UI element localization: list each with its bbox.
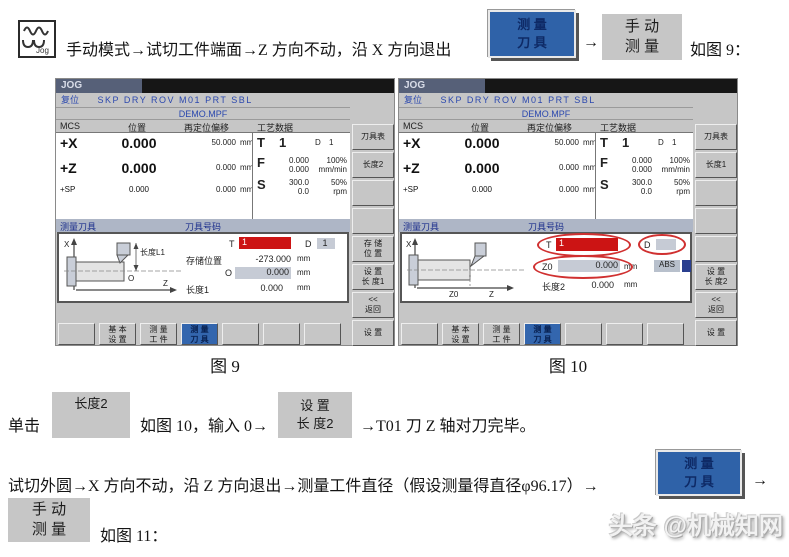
axis-sp-name: +SP	[60, 185, 75, 194]
bottom-softkeys: 基 本 设 置 测 量 工 件 测 量 刀 具	[58, 323, 350, 345]
softkey-basic-settings[interactable]: 基 本 设 置	[99, 323, 136, 345]
f-unit: mm/min	[309, 165, 347, 174]
offset-label: O	[225, 268, 232, 278]
f-unit: mm/min	[652, 165, 690, 174]
axis-z-repos: 0.000	[176, 163, 236, 172]
softkey-set-length2[interactable]: 设 置 长 度2	[695, 264, 737, 290]
fig10-caption: 图 10	[498, 352, 638, 377]
position-table-header: MCS 位置 再定位偏移 工艺数据	[56, 120, 350, 133]
f-override: 100%	[313, 156, 347, 165]
axis-x-repos: 50.000	[519, 138, 579, 147]
diagram-z-label: Z	[163, 279, 168, 288]
manual-measure-button-2[interactable]: 手 动 测 量	[8, 498, 90, 542]
s-set: 0.0	[614, 187, 652, 196]
measure-tool-button[interactable]: 测 量 刀 具	[488, 10, 576, 58]
softkey-empty[interactable]	[647, 323, 684, 345]
set-length2-button[interactable]: 设 置 长 度2	[278, 392, 352, 438]
axis-x-position: 0.000	[445, 135, 519, 151]
s-label: S	[257, 177, 266, 192]
axis-sp-position: 0.000	[102, 185, 176, 194]
d-label: D	[315, 138, 321, 147]
axis-z-name: +Z	[403, 160, 420, 176]
axis-sp-repos: 0.000	[176, 185, 236, 194]
s-actual: 300.0	[614, 178, 652, 187]
s-override: 50%	[656, 178, 690, 187]
t-label: T	[600, 135, 608, 150]
panel-t-field[interactable]: 1	[239, 237, 291, 249]
line4-text: 如图 11：	[100, 522, 167, 546]
tech-data-area: T 1 D 1 F 0.000 0.000 100% mm/min S 300.…	[595, 133, 693, 219]
annotation-circle-z0	[533, 255, 633, 279]
softkey-settings[interactable]: 设 置	[352, 320, 394, 346]
status-reset-label: 复位	[404, 95, 422, 105]
d-label: D	[658, 138, 664, 147]
softkey-measure-tool[interactable]: 测 量 刀 具	[181, 323, 218, 345]
tech-data-area: T 1 D 1 F 0.000 0.000 100% mm/min S 300.…	[252, 133, 350, 219]
t-value: 1	[622, 135, 629, 150]
s-override: 50%	[313, 178, 347, 187]
softkey-empty[interactable]	[695, 180, 737, 206]
offset-unit: mm	[297, 268, 310, 277]
softkey-tool-table[interactable]: 刀具表	[352, 124, 394, 150]
measure-tool-button-2[interactable]: 测 量 刀 具	[656, 450, 742, 496]
status-flags: SKP DRY ROV M01 PRT SBL	[98, 95, 253, 105]
axis-z-name: +Z	[60, 160, 77, 176]
screen-titlebar: JOG	[399, 79, 737, 93]
f-actual: 0.000	[271, 156, 309, 165]
position-table-header: MCS 位置 再定位偏移 工艺数据	[399, 120, 693, 133]
tool-diagram: X Z0 Z	[405, 236, 530, 298]
fig9-caption: 图 9	[155, 352, 295, 377]
arrow-2: →	[752, 472, 768, 490]
softkey-store-position[interactable]: 存 储 位 置	[352, 236, 394, 262]
softkey-measure-workpiece[interactable]: 测 量 工 件	[140, 323, 177, 345]
axis-sp-name: +SP	[403, 185, 418, 194]
status-reset-label: 复位	[61, 95, 79, 105]
tool-diagram: X 长度L1 O Z	[62, 236, 187, 298]
axis-sp-position: 0.000	[445, 185, 519, 194]
line2-text3: →T01 刀 Z 轴对刀完毕。	[360, 412, 536, 436]
axis-z-position: 0.000	[102, 160, 176, 176]
length2-value: 0.000	[572, 280, 614, 290]
status-bar: 复位 SKP DRY ROV M01 PRT SBL	[56, 93, 350, 108]
softkey-empty[interactable]	[352, 180, 394, 206]
measure-tool-panel: X 长度L1 O Z T 1 D 1 存储位置 -273.000 mm O 0.…	[57, 232, 349, 303]
line1-text: 手动模式→试切工件端面→Z 方向不动，沿 X 方向退出	[66, 36, 451, 60]
s-actual: 300.0	[271, 178, 309, 187]
axis-row-x: +X 0.000 50.000 mm	[399, 135, 595, 157]
panel-d-field[interactable]: 1	[317, 238, 335, 249]
axis-z-position: 0.000	[445, 160, 519, 176]
axis-x-repos: 50.000	[176, 138, 236, 147]
measure-panel-header: 测量刀具 刀具号码	[399, 219, 693, 232]
axis-row-z: +Z 0.000 0.000 mm	[399, 160, 595, 182]
line2-text2: 如图 10，输入 0→	[140, 412, 268, 436]
line3-text: 试切外圆→X 方向不动，沿 Z 方向退出→测量工件直径（假设测量得直径φ96.1…	[8, 472, 599, 496]
diagram-z-label: Z	[489, 290, 494, 298]
jog-mode-tab: JOG	[56, 79, 142, 93]
f-override: 100%	[656, 156, 690, 165]
jog-key-icon: Jog	[18, 20, 56, 58]
softkey-empty[interactable]	[304, 323, 341, 345]
axis-z-repos: 0.000	[519, 163, 579, 172]
cnc-screen-fig9: JOG 复位 SKP DRY ROV M01 PRT SBL DEMO.MPF …	[55, 78, 395, 346]
length2-button[interactable]: 长度2	[52, 392, 130, 438]
length2-label: 长度2	[542, 280, 565, 293]
col-mcs: MCS	[60, 121, 80, 131]
diagram-x-label: X	[406, 240, 412, 249]
abs-toggle-label[interactable]: ABS	[654, 260, 680, 272]
bottom-softkeys: 基 本 设 置 测 量 工 件 测 量 刀 具	[401, 323, 693, 345]
watermark: 头条 @机械知网	[609, 506, 783, 541]
t-label: T	[257, 135, 265, 150]
softkey-back[interactable]: << 返回	[352, 292, 394, 318]
position-area: +X 0.000 50.000 mm +Z 0.000 0.000 mm +SP…	[399, 133, 693, 219]
right-softkeys: 刀具表 长度1 设 置 长 度2 << 返回 设 置	[695, 124, 737, 348]
softkey-length2[interactable]: 长度2	[352, 152, 394, 178]
s-unit: rpm	[313, 187, 347, 196]
d-value: 1	[329, 138, 333, 147]
f-set: 0.000	[614, 165, 652, 174]
program-name: DEMO.MPF	[399, 108, 693, 120]
panel-t-label: T	[229, 239, 235, 249]
status-bar: 复位 SKP DRY ROV M01 PRT SBL	[399, 93, 693, 108]
axis-row-sp: +SP 0.000 0.000 mm	[56, 182, 252, 204]
cnc-screen-fig10: JOG 复位 SKP DRY ROV M01 PRT SBL DEMO.MPF …	[398, 78, 738, 346]
status-flags: SKP DRY ROV M01 PRT SBL	[441, 95, 596, 105]
measure-panel-header: 测量刀具 刀具号码	[56, 219, 350, 232]
axis-sp-repos: 0.000	[519, 185, 579, 194]
diagram-origin-label: O	[128, 274, 134, 283]
screen-titlebar: JOG	[56, 79, 394, 93]
measure-tool-panel: X Z0 Z T 1 D Z0 0.000 mm ABS 长度2 0.000 m…	[400, 232, 692, 303]
storage-position-unit: mm	[297, 254, 310, 263]
softkey-empty[interactable]	[565, 323, 602, 345]
softkey-empty[interactable]	[695, 236, 737, 262]
softkey-empty[interactable]	[58, 323, 95, 345]
arrow-1: →	[583, 34, 599, 52]
axis-row-x: +X 0.000 50.000 mm	[56, 135, 252, 157]
length2-unit: mm	[624, 280, 637, 289]
length1-unit: mm	[297, 283, 310, 292]
softkey-empty[interactable]	[352, 208, 394, 234]
axis-row-z: +Z 0.000 0.000 mm	[56, 160, 252, 182]
program-name: DEMO.MPF	[56, 108, 350, 120]
annotation-circle-d	[638, 234, 686, 255]
panel-d-label: D	[305, 239, 312, 249]
storage-position-value: -273.000	[237, 254, 291, 264]
annotation-circle-t	[537, 233, 631, 257]
line2-text1: 单击	[8, 412, 40, 436]
t-value: 1	[279, 135, 286, 150]
softkey-settings[interactable]: 设 置	[695, 320, 737, 346]
diagram-z0-label: Z0	[449, 290, 459, 298]
softkey-measure-tool[interactable]: 测 量 刀 具	[524, 323, 561, 345]
softkey-back[interactable]: << 返回	[695, 292, 737, 318]
softkey-empty[interactable]	[695, 208, 737, 234]
axis-x-name: +X	[403, 135, 421, 151]
softkey-empty[interactable]	[263, 323, 300, 345]
line1-see-fig9: 如图 9：	[690, 36, 750, 60]
length1-value: 0.000	[237, 283, 283, 293]
diagram-x-label: X	[64, 240, 70, 249]
softkey-set-length1[interactable]: 设 置 长 度1	[352, 264, 394, 290]
manual-measure-button[interactable]: 手 动 测 量	[602, 14, 682, 60]
softkey-measure-workpiece[interactable]: 测 量 工 件	[483, 323, 520, 345]
length1-label: 长度1	[186, 283, 209, 296]
softkey-length1[interactable]: 长度1	[695, 152, 737, 178]
softkey-empty[interactable]	[606, 323, 643, 345]
f-set: 0.000	[271, 165, 309, 174]
softkey-empty[interactable]	[222, 323, 259, 345]
s-set: 0.0	[271, 187, 309, 196]
s-label: S	[600, 177, 609, 192]
f-label: F	[600, 155, 608, 170]
abs-toggle-box[interactable]	[682, 260, 691, 272]
f-label: F	[257, 155, 265, 170]
col-mcs: MCS	[403, 121, 423, 131]
axis-x-position: 0.000	[102, 135, 176, 151]
position-area: +X 0.000 50.000 mm +Z 0.000 0.000 mm +SP…	[56, 133, 350, 219]
diagram-length-label: 长度L1	[140, 247, 165, 257]
jog-mode-tab: JOG	[399, 79, 485, 93]
softkey-basic-settings[interactable]: 基 本 设 置	[442, 323, 479, 345]
softkey-tool-table[interactable]: 刀具表	[695, 124, 737, 150]
s-unit: rpm	[656, 187, 690, 196]
jog-key-label: Jog	[36, 46, 49, 55]
d-value: 1	[672, 138, 676, 147]
storage-position-label: 存储位置	[186, 254, 222, 267]
offset-field[interactable]: 0.000	[235, 267, 291, 279]
softkey-empty[interactable]	[401, 323, 438, 345]
f-actual: 0.000	[614, 156, 652, 165]
right-softkeys: 刀具表 长度2 存 储 位 置 设 置 长 度1 << 返回 设 置	[352, 124, 394, 348]
axis-x-name: +X	[60, 135, 78, 151]
axis-row-sp: +SP 0.000 0.000 mm	[399, 182, 595, 204]
